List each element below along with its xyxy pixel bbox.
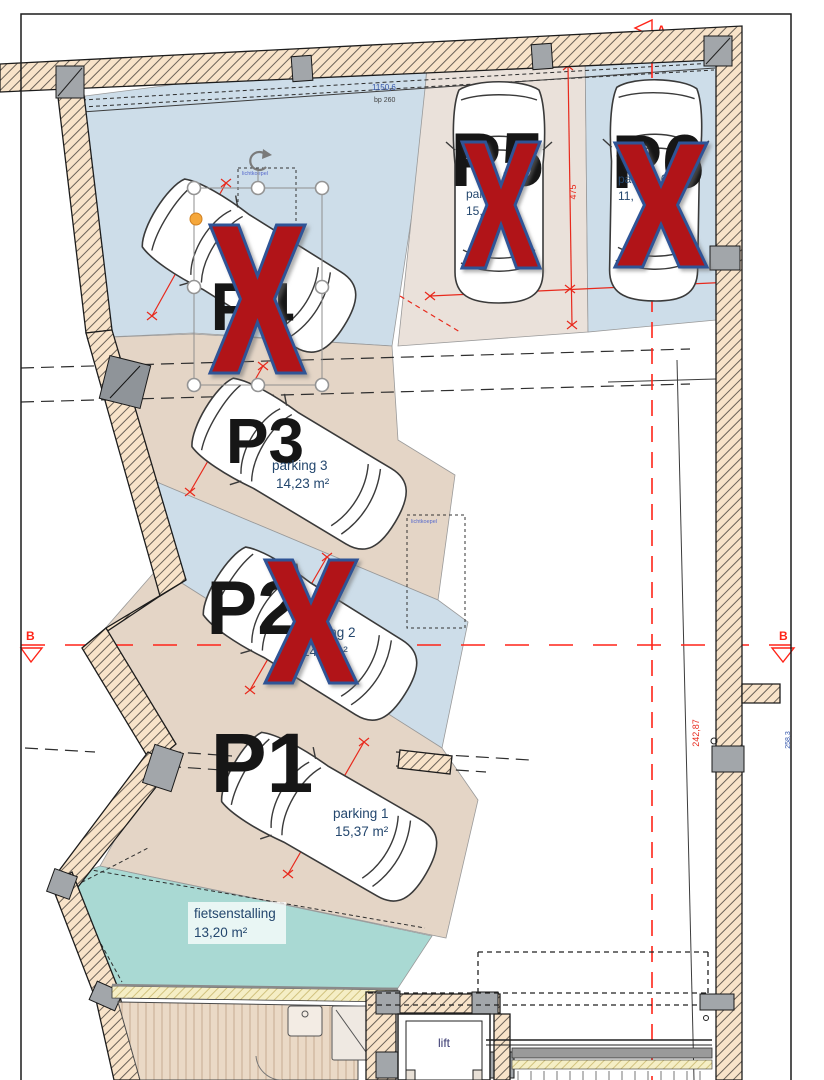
section-label-b-right: B bbox=[779, 629, 788, 643]
floorplan-canvas: lichtkoepel lichtkoepel A B B 240 240 24… bbox=[0, 0, 824, 1080]
spot-area-p1: 15,37 m² bbox=[335, 824, 389, 839]
floorplan-drawing: lichtkoepel lichtkoepel A B B 240 240 24… bbox=[0, 0, 824, 1080]
section-marker-b-left bbox=[21, 648, 42, 662]
spot-area-p5: 15, bbox=[466, 204, 483, 218]
lift-shaft: lift bbox=[398, 1014, 490, 1080]
resize-handle-w[interactable] bbox=[188, 281, 201, 294]
svg-text:475: 475 bbox=[568, 184, 578, 199]
section-label-b-left: B bbox=[26, 629, 35, 643]
skylight-label-1: lichtkoepel bbox=[242, 171, 268, 177]
resize-handle-sw[interactable] bbox=[188, 379, 201, 392]
column bbox=[704, 36, 732, 66]
spot-label-p1: P1 bbox=[211, 716, 314, 810]
dim-right-height: 242,87 bbox=[691, 719, 701, 747]
lift-wall-right bbox=[494, 1014, 510, 1080]
bike-storage-area-label: 13,20 m² bbox=[194, 925, 248, 940]
adjust-handle[interactable] bbox=[190, 213, 202, 225]
resize-handle-se[interactable] bbox=[316, 379, 329, 392]
spot-name-p1: parking 1 bbox=[333, 806, 389, 821]
resize-handle-nw[interactable] bbox=[188, 182, 201, 195]
stairs-area bbox=[486, 1040, 712, 1080]
bike-storage-label: fietsenstalling bbox=[194, 906, 276, 921]
resize-handle-ne[interactable] bbox=[316, 182, 329, 195]
lift-label: lift bbox=[438, 1036, 451, 1050]
resize-handle-n[interactable] bbox=[252, 182, 265, 195]
skylight-label-2: lichtkoepel bbox=[411, 519, 437, 525]
resize-handle-s[interactable] bbox=[252, 379, 265, 392]
spot-area-p6: 11, bbox=[618, 189, 634, 203]
dim-top-sub: bp 260 bbox=[374, 97, 396, 104]
resize-handle-e[interactable] bbox=[316, 281, 329, 294]
spot-name-p3: parking 3 bbox=[272, 458, 328, 473]
dim-top-length: 1150,6 bbox=[372, 83, 396, 92]
column bbox=[56, 66, 84, 98]
spot-area-p3: 14,23 m² bbox=[276, 476, 330, 491]
